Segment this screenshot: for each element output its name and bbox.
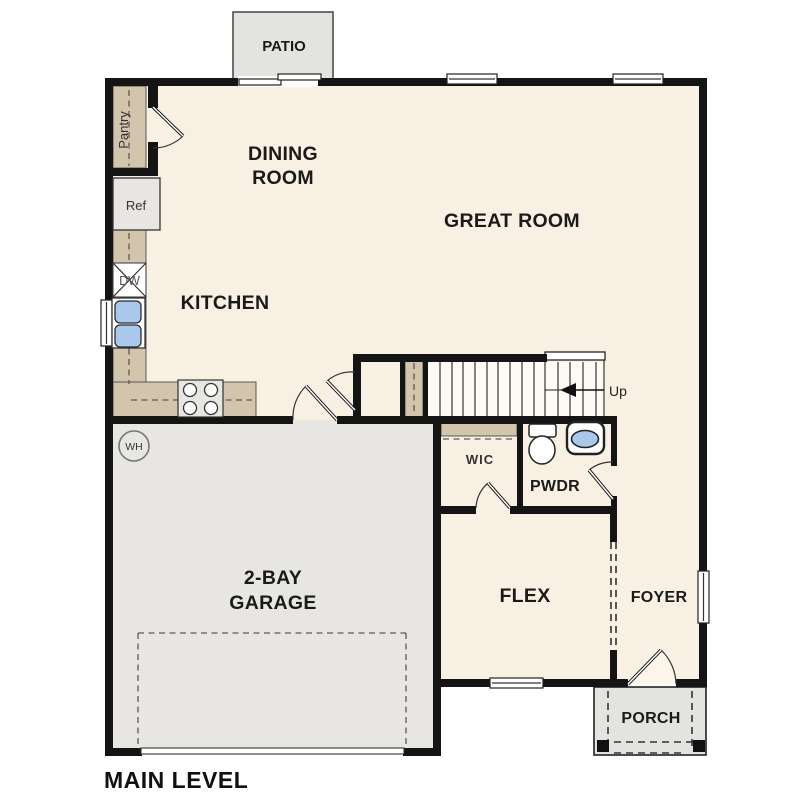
- wall-foyer-bottom: [676, 679, 707, 687]
- foyer-label: FOYER: [631, 589, 688, 606]
- wall-flex-right-stub-top: [610, 514, 617, 542]
- porch-post-right: [693, 740, 705, 752]
- sink-basin-top: [115, 301, 141, 323]
- wall-stair-top: [353, 354, 547, 362]
- patio-slider-panel-outer: [278, 74, 321, 80]
- wic-shelf: [441, 422, 517, 436]
- patio-area: PATIO: [233, 12, 333, 79]
- porch-area: PORCH: [594, 687, 706, 755]
- wall-pantry-stub-top: [148, 82, 158, 108]
- toilet-bowl: [529, 436, 555, 464]
- powder-label: PWDR: [530, 478, 580, 495]
- floor-plan: PATIO PORCH: [0, 0, 810, 810]
- toilet-tank: [529, 424, 556, 437]
- patio-label: PATIO: [262, 38, 306, 55]
- garage-label-line1: 2-BAY: [244, 567, 302, 589]
- wall-below-pantry: [105, 168, 158, 176]
- burner-3: [184, 402, 197, 415]
- stair-landing-rail: [545, 352, 605, 360]
- water-heater-label: WH: [125, 441, 143, 453]
- wall-right-lower: [699, 623, 707, 687]
- wall-bottom-left-seg: [105, 748, 142, 756]
- wall-pwdr-right-upper: [611, 422, 617, 466]
- wall-wic-bottom-a: [440, 506, 476, 514]
- wall-wic-pwdr-divider: [517, 422, 523, 514]
- wall-coat-closet-right: [423, 360, 428, 418]
- wall-flex-right-stub-bottom: [610, 650, 617, 687]
- pantry-label: Pantry: [116, 111, 131, 149]
- dishwasher-label: DW: [119, 274, 140, 288]
- plan-title: MAIN LEVEL: [104, 767, 248, 793]
- garage-label-line2: GARAGE: [229, 592, 316, 614]
- sink-basin-bottom: [115, 325, 141, 347]
- burner-2: [205, 384, 218, 397]
- wall-wic-bottom-b: [510, 506, 617, 514]
- wall-right-upper: [699, 78, 707, 571]
- wall-stair-closet-left: [353, 354, 361, 424]
- dining-room-label-line2: ROOM: [252, 167, 314, 189]
- dining-room-label-line1: DINING: [248, 143, 318, 165]
- burner-4: [205, 402, 218, 415]
- patio-slider-panel-inner: [239, 79, 281, 85]
- refrigerator-label: Ref: [126, 198, 147, 213]
- wic-label: WIC: [466, 452, 494, 467]
- wall-garage-right: [433, 418, 441, 756]
- garage-door-panel: [141, 748, 404, 754]
- stairs-up-label: Up: [609, 383, 627, 399]
- kitchen-label: KITCHEN: [181, 292, 270, 314]
- floor-plan-canvas: PATIO PORCH: [0, 0, 810, 810]
- great-room-label: GREAT ROOM: [444, 210, 580, 232]
- wall-coat-closet-left: [400, 360, 405, 418]
- burner-1: [184, 384, 197, 397]
- porch-label: PORCH: [621, 710, 680, 727]
- porch-post-left: [597, 740, 609, 752]
- vanity-basin: [572, 431, 599, 448]
- flex-label: FLEX: [499, 585, 550, 607]
- wall-flex-bottom-a: [433, 679, 491, 687]
